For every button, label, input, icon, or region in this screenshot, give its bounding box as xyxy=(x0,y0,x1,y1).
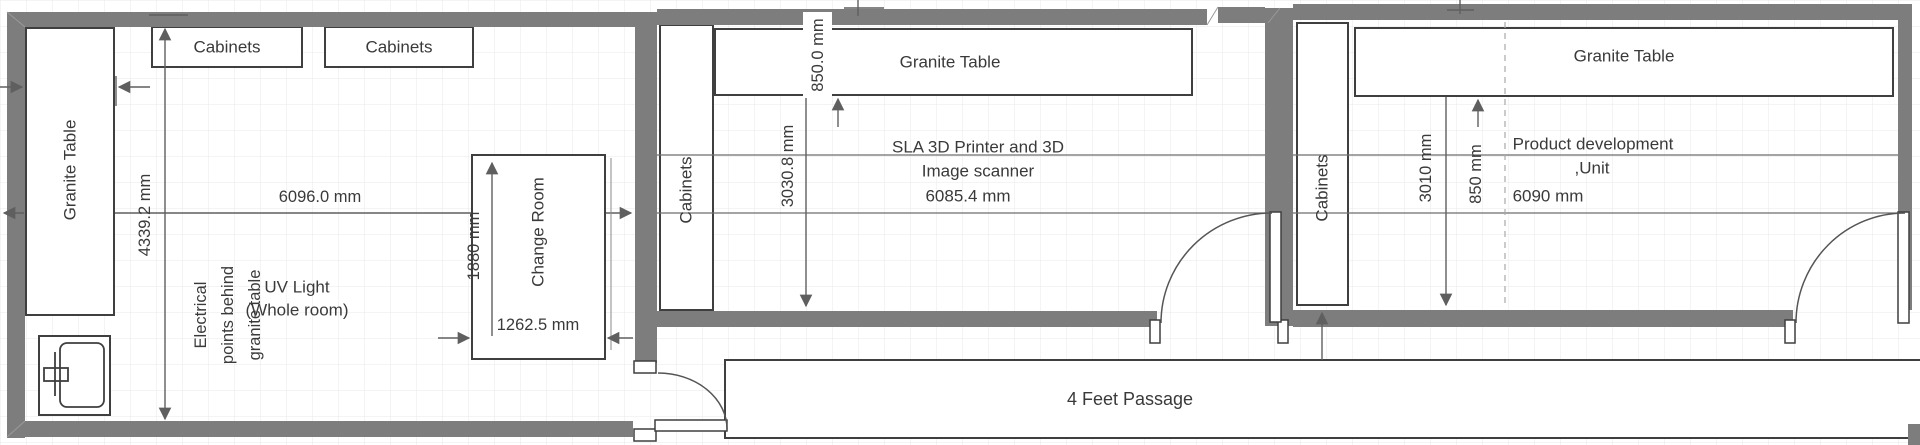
room1-cabinets-left-label: Cabinets xyxy=(193,38,260,57)
room2-bottom-wall xyxy=(657,311,1157,327)
unit-note-line2: ,Unit xyxy=(1575,159,1610,178)
room1-granite-table-label: Granite Table xyxy=(61,120,80,221)
room2-door-jamb-left xyxy=(1150,320,1160,343)
wall-corner-piece xyxy=(1908,424,1920,445)
electrical-note-line3: granite table xyxy=(246,270,264,361)
passage-label: 4 Feet Passage xyxy=(1067,389,1193,409)
passage-box xyxy=(725,360,1920,438)
uv-light-note-line1: UV Light xyxy=(264,278,329,297)
room3-table-offset-label: 850 mm xyxy=(1467,144,1485,204)
sink-outline xyxy=(39,336,110,415)
room3-top-wall xyxy=(1293,4,1898,20)
room3-bottom-wall xyxy=(1293,310,1793,327)
room3-door-jamb xyxy=(1785,320,1795,343)
change-room-width-label: 1262.5 mm xyxy=(497,316,580,334)
room2-cabinets-label: Cabinets xyxy=(677,156,696,223)
room2-door-jamb-right xyxy=(1278,320,1288,343)
room2-table-offset-label: 850.0 mm xyxy=(809,18,827,91)
unit-note-line3: 6090 mm xyxy=(1513,187,1584,206)
room1-door-jamb-bottom xyxy=(634,429,656,441)
electrical-note-line2: points behind xyxy=(219,266,237,364)
room3-door-leaf xyxy=(1898,212,1909,323)
room1-bottom-wall xyxy=(7,421,633,437)
floor-plan-canvas: Cabinets Cabinets 6096.0 mm UV Light (Wh… xyxy=(0,0,1920,445)
electrical-note-line1: Electrical xyxy=(192,282,210,349)
floor-plan: Cabinets Cabinets 6096.0 mm UV Light (Wh… xyxy=(0,0,1920,445)
room3-height-dimension-label: 3010 mm xyxy=(1417,134,1435,203)
room3-cabinets-label: Cabinets xyxy=(1313,154,1332,221)
room2-height-dimension-label: 3030.8 mm xyxy=(779,125,797,208)
room2-door-leaf xyxy=(1270,212,1281,322)
room1-top-wall xyxy=(7,12,657,27)
room1-room2-divider-wall xyxy=(635,12,657,363)
equipment-note-line2: Image scanner xyxy=(922,162,1035,181)
equipment-note-line1: SLA 3D Printer and 3D xyxy=(892,138,1064,157)
room1-width-dimension-label: 6096.0 mm xyxy=(279,188,362,206)
change-room-label: Change Room xyxy=(529,177,548,287)
room1-height-dimension-label: 4339.2 mm xyxy=(136,174,154,257)
unit-note-line1: Product development xyxy=(1513,135,1674,154)
room3-granite-table-label: Granite Table xyxy=(1574,47,1675,66)
equipment-note-line3: 6085.4 mm xyxy=(925,187,1010,206)
top-wall-joint xyxy=(1218,7,1265,23)
room1-door-leaf xyxy=(655,420,727,431)
room2-top-wall xyxy=(657,9,1207,25)
change-room-height-label: 1880 mm xyxy=(465,212,483,281)
room1-cabinets-right-label: Cabinets xyxy=(365,38,432,57)
room1-sink xyxy=(39,336,110,415)
room1-left-wall xyxy=(7,12,25,438)
room2-granite-table-label: Granite Table xyxy=(900,53,1001,72)
room1-door-jamb-top xyxy=(634,361,656,373)
